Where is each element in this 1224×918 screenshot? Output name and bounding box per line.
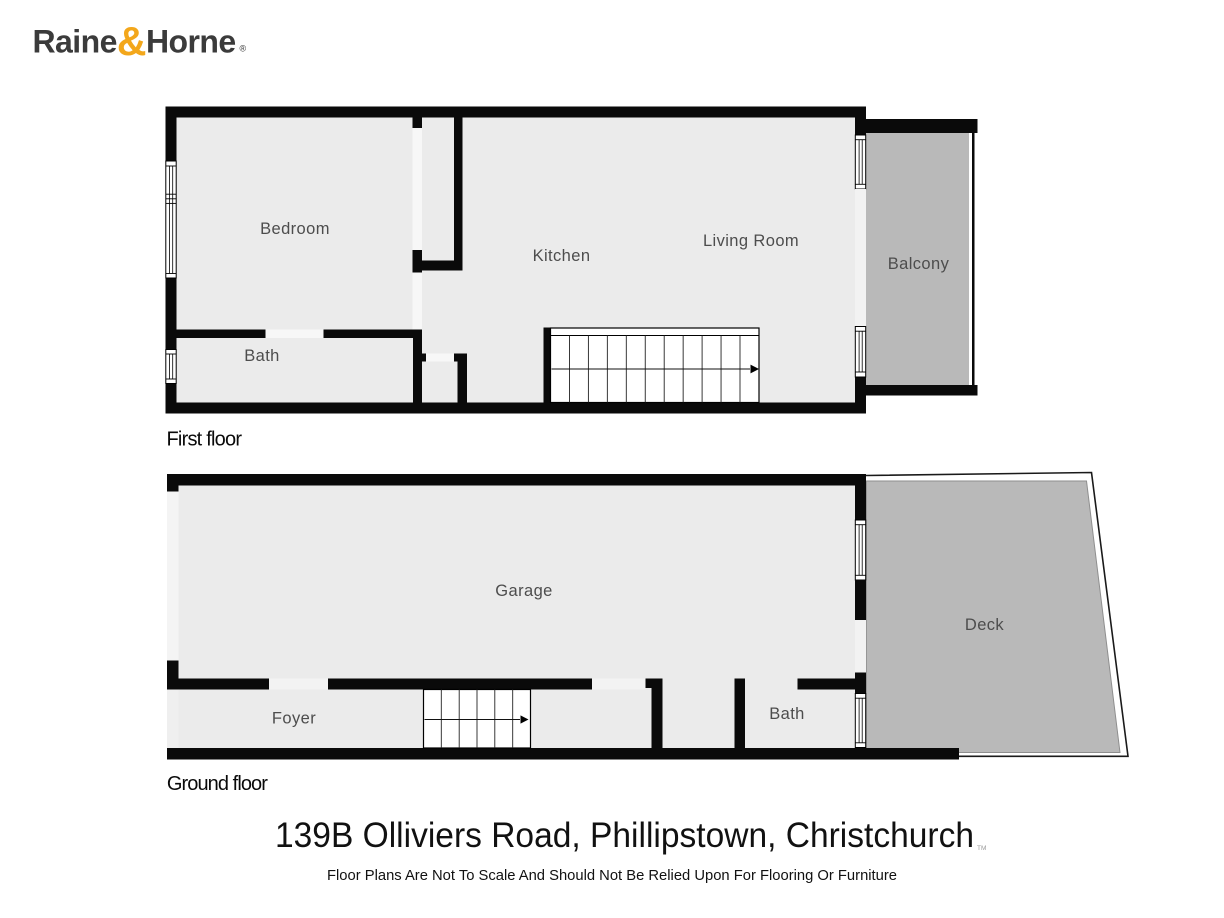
svg-text:Floor Plans Are Not To Scale A: Floor Plans Are Not To Scale And Should … — [327, 867, 897, 884]
svg-text:Foyer: Foyer — [272, 709, 316, 727]
svg-text:139B Olliviers Road, Phillipst: 139B Olliviers Road, Phillipstown, Chris… — [275, 816, 974, 855]
svg-text:Bedroom: Bedroom — [260, 220, 330, 238]
svg-text:Ground floor: Ground floor — [167, 773, 268, 795]
svg-text:Garage: Garage — [495, 582, 552, 600]
svg-text:Raine&Horne: Raine&Horne — [33, 18, 236, 64]
svg-text:Bath: Bath — [769, 705, 805, 723]
svg-text:Deck: Deck — [965, 616, 1005, 634]
svg-text:Living Room: Living Room — [703, 232, 799, 250]
svg-text:First floor: First floor — [167, 428, 243, 450]
svg-text:Kitchen: Kitchen — [533, 247, 591, 265]
svg-text:Balcony: Balcony — [888, 255, 950, 273]
svg-text:®: ® — [240, 44, 247, 54]
svg-text:Bath: Bath — [244, 347, 280, 365]
svg-text:TM: TM — [977, 845, 986, 852]
